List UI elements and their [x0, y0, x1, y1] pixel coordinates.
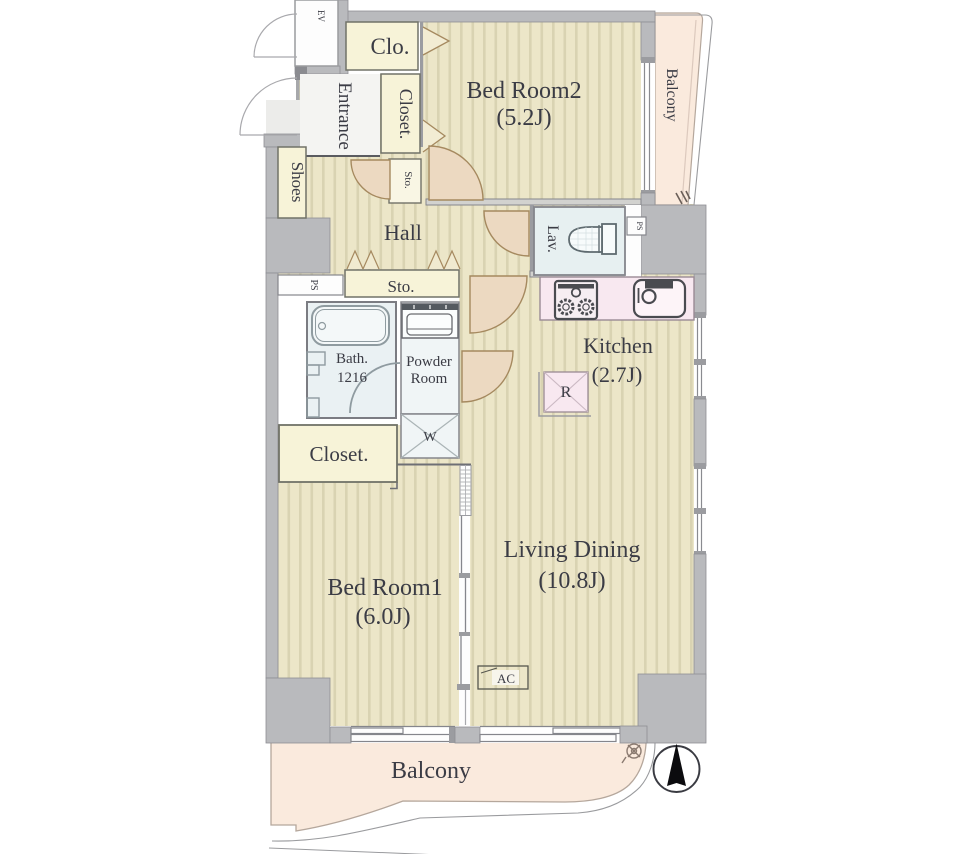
- svg-text:R: R: [561, 384, 572, 401]
- svg-text:1216: 1216: [337, 370, 368, 386]
- svg-text:(6.0J): (6.0J): [355, 604, 410, 630]
- svg-text:Sto.: Sto.: [388, 277, 415, 296]
- svg-text:Hall: Hall: [384, 220, 422, 245]
- svg-text:PS: PS: [635, 222, 644, 231]
- svg-text:Balcony: Balcony: [391, 758, 471, 784]
- svg-text:EV: EV: [316, 10, 326, 22]
- svg-text:(5.2J): (5.2J): [496, 105, 551, 131]
- svg-text:AC: AC: [497, 671, 515, 686]
- svg-text:(10.8J): (10.8J): [538, 568, 605, 594]
- svg-text:Closet.: Closet.: [310, 442, 369, 466]
- svg-text:Entrance: Entrance: [334, 82, 355, 150]
- svg-text:Room: Room: [411, 371, 448, 387]
- svg-text:Bath.: Bath.: [336, 351, 368, 367]
- svg-text:PS: PS: [308, 279, 319, 290]
- svg-text:Clo.: Clo.: [371, 34, 410, 59]
- svg-text:Closet.: Closet.: [396, 89, 416, 140]
- svg-text:Living Dining: Living Dining: [504, 537, 641, 563]
- svg-text:Sto.: Sto.: [402, 171, 414, 189]
- svg-text:Bed Room1: Bed Room1: [327, 575, 442, 601]
- svg-text:W: W: [423, 430, 437, 445]
- svg-text:Shoes: Shoes: [288, 162, 307, 203]
- svg-text:Kitchen: Kitchen: [583, 333, 653, 358]
- svg-text:Bed Room2: Bed Room2: [466, 78, 581, 104]
- svg-text:Balcony: Balcony: [663, 68, 680, 121]
- svg-text:(2.7J): (2.7J): [592, 362, 643, 387]
- svg-text:Powder: Powder: [406, 354, 452, 370]
- svg-text:Lav.: Lav.: [544, 225, 561, 253]
